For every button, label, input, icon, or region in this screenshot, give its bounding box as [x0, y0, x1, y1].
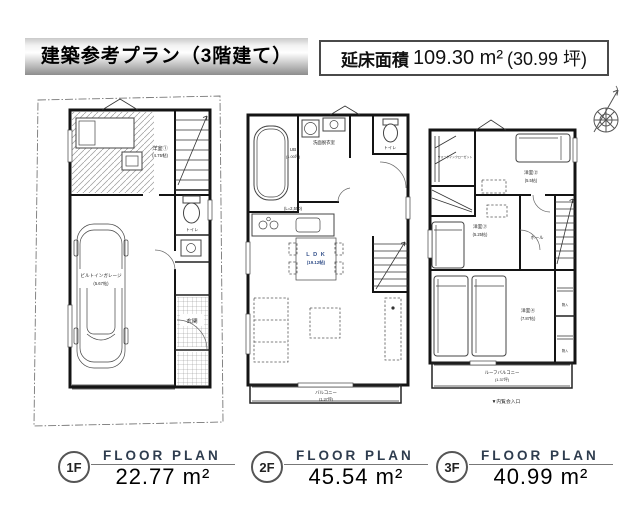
door-arc [520, 230, 540, 250]
kitchen-2f: (L=2,550) [252, 206, 334, 236]
stairs-3f [555, 199, 575, 264]
room-size-2f-bath: (1.00坪) [286, 154, 301, 159]
room-label-2f-washroom: 洗面脱衣室 [313, 139, 336, 146]
floor-plan-caption-3f: FLOOR PLAN [469, 446, 613, 465]
room-label-3f-hall: ホール [531, 235, 545, 240]
window-icon [246, 314, 250, 354]
window-icon [470, 361, 496, 365]
roof-balcony-3f: ルーフバルコニー (1.37坪) [432, 363, 572, 388]
bed-icon [432, 222, 464, 268]
floor-plan-2f: UB (1.00坪) 洗面脱衣室 トイレ [238, 102, 418, 412]
floor-area-2f: 45.54 m² [308, 464, 403, 490]
car-icon [74, 224, 128, 368]
stairs-2f [373, 242, 408, 289]
window-icon [246, 242, 250, 274]
bedroom-1f: 洋室① (4.75帖) [72, 112, 168, 193]
total-area-value: 109.30 m² [413, 47, 503, 70]
toilet-icon [183, 196, 200, 203]
room-size-3f-bedroom2: (5.5帖) [525, 177, 538, 183]
room-size-3f-roof-balcony: (1.37坪) [495, 377, 510, 382]
toilet-2f: トイレ [383, 119, 398, 150]
coffee-table-icon [310, 308, 340, 338]
room-label-3f-bedroom2: 洋室② [524, 169, 538, 176]
desk-icon [482, 180, 506, 193]
floor-badge-2f: 2F [251, 451, 283, 483]
bathtub-icon [254, 126, 288, 200]
kitchen-length-label: (L=2,550) [284, 206, 303, 211]
floor-label-3f: 3F FLOOR PLAN 40.99 m² [436, 446, 613, 490]
door-arc [155, 250, 175, 270]
storage-label: 物入 [562, 348, 569, 353]
room-label-1f-toilet: トイレ [186, 227, 199, 232]
room-size-1f-bedroom: (4.75帖) [152, 152, 168, 159]
window-icon [68, 305, 72, 347]
bedroom4-3f: 洋室④ (7.87帖) [434, 276, 536, 356]
window-icon [406, 197, 410, 219]
washroom-2f: 洗面脱衣室 [302, 118, 345, 146]
bedroom2-3f: 洋室② (5.5帖) [482, 134, 570, 193]
garage-label: ビルトインガレージ (5.67帖) [78, 269, 124, 288]
compass-icon [580, 78, 636, 142]
stairs-1f [175, 116, 210, 185]
window-icon [428, 230, 432, 258]
total-area-box: 延床面積 109.30 m² (30.99 坪) [319, 40, 609, 76]
window-icon [68, 130, 72, 162]
floor-plan-sheet: 建築参考プラン（3階建て） 延床面積 109.30 m² (30.99 坪) [0, 0, 640, 516]
room-label-3f-bedroom3: 洋室③ [473, 223, 487, 230]
room-label-3f-bedroom4: 洋室④ [521, 307, 535, 314]
storage-label: 物入 [562, 302, 569, 307]
floor-area-3f: 40.99 m² [493, 464, 588, 490]
floor-plan-3f: ウォークインクローゼット 洋室② (5.5帖) 洋室③ (5.25帖) ホール [418, 98, 603, 418]
room-label-3f-wic: ウォークインクローゼット [438, 154, 473, 159]
room-size-1f-garage: (5.67帖) [93, 280, 109, 287]
dining-set-2f: L D K (19.12帖) [289, 238, 343, 280]
bathroom-2f: UB (1.00坪) [254, 126, 301, 200]
bed-icon [76, 118, 134, 148]
walk-in-closet-3f: ウォークインクローゼット [432, 136, 472, 212]
room-size-3f-bedroom3: (5.25帖) [473, 231, 488, 237]
room-label-1f-garage: ビルトインガレージ [80, 272, 122, 279]
room-label-2f-balcony: バルコニー [315, 390, 337, 395]
gable-vent-icon [102, 99, 138, 110]
floor-area-1f: 22.77 m² [115, 464, 210, 490]
door-arc [338, 188, 350, 202]
door-arc [380, 162, 406, 188]
washbasin-icon [181, 240, 201, 256]
window-icon [208, 200, 212, 220]
window-icon [573, 138, 577, 162]
floor-plan-caption-2f: FLOOR PLAN [284, 446, 428, 465]
room-label-1f-bedroom: 洋室① [152, 144, 168, 152]
entrance-1f: 玄関 [177, 297, 208, 385]
floor-badge-1f: 1F [58, 451, 90, 483]
total-area-label: 延床面積 [341, 46, 409, 71]
room-label-2f-toilet: トイレ [384, 145, 397, 150]
bed-icon [472, 276, 506, 356]
floor-label-1f: 1F FLOOR PLAN 22.77 m² [58, 446, 235, 490]
balcony-2f: バルコニー (1.37坪) [250, 385, 401, 403]
closets-3f: 物入 物入 [557, 288, 573, 353]
kitchen-counter [252, 214, 334, 236]
room-size-2f-balcony: (1.37坪) [319, 397, 334, 402]
room-label-2f-ldk: L D K [306, 252, 326, 258]
dining-table-icon [296, 238, 336, 280]
window-icon [298, 383, 353, 387]
living-furniture-2f [254, 298, 401, 362]
washbasin-1f [181, 240, 201, 256]
hall-3f: ホール [520, 195, 550, 250]
room-label-2f-bath: UB [290, 147, 296, 152]
entry-note: ▼内覧会入口 [492, 398, 521, 405]
room-size-2f-ldk: (19.12帖) [307, 259, 326, 266]
floor-plan-caption-1f: FLOOR PLAN [91, 446, 235, 465]
floor-plan-1f: 洋室① (4.75帖) トイレ 玄関 [30, 90, 230, 435]
bed-icon [434, 276, 468, 356]
vanity-icon [323, 118, 345, 131]
floor-badge-3f: 3F [436, 451, 468, 483]
door-arc [533, 195, 550, 212]
room-label-3f-roof-balcony: ルーフバルコニー [485, 370, 520, 375]
room-size-3f-bedroom4: (7.87帖) [521, 315, 536, 321]
bedroom3-3f: 洋室③ (5.25帖) [432, 205, 507, 268]
desk-icon [487, 205, 507, 217]
total-area-tsubo: (30.99 坪) [507, 45, 587, 71]
floor-label-2f: 2F FLOOR PLAN 45.54 m² [251, 446, 428, 490]
sofa-icon [254, 298, 288, 362]
toilet-1f: トイレ [183, 196, 200, 232]
page-title: 建築参考プラン（3階建て） [25, 38, 308, 75]
